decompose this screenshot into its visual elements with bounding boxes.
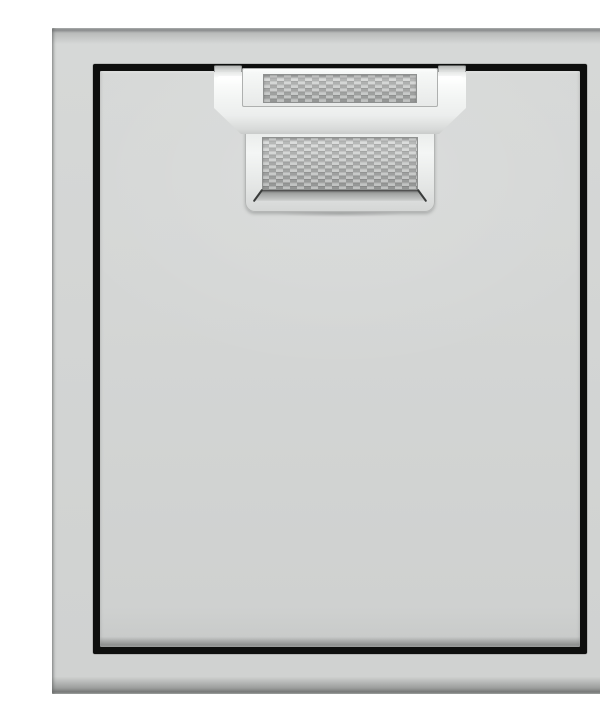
door-panel <box>100 71 580 647</box>
door-reveal-gap <box>93 64 587 654</box>
door-frame <box>52 28 600 694</box>
image-description: Product photo of a brushed stainless ste… <box>40 16 41 17</box>
product-image: Product photo of a brushed stainless ste… <box>40 16 600 706</box>
